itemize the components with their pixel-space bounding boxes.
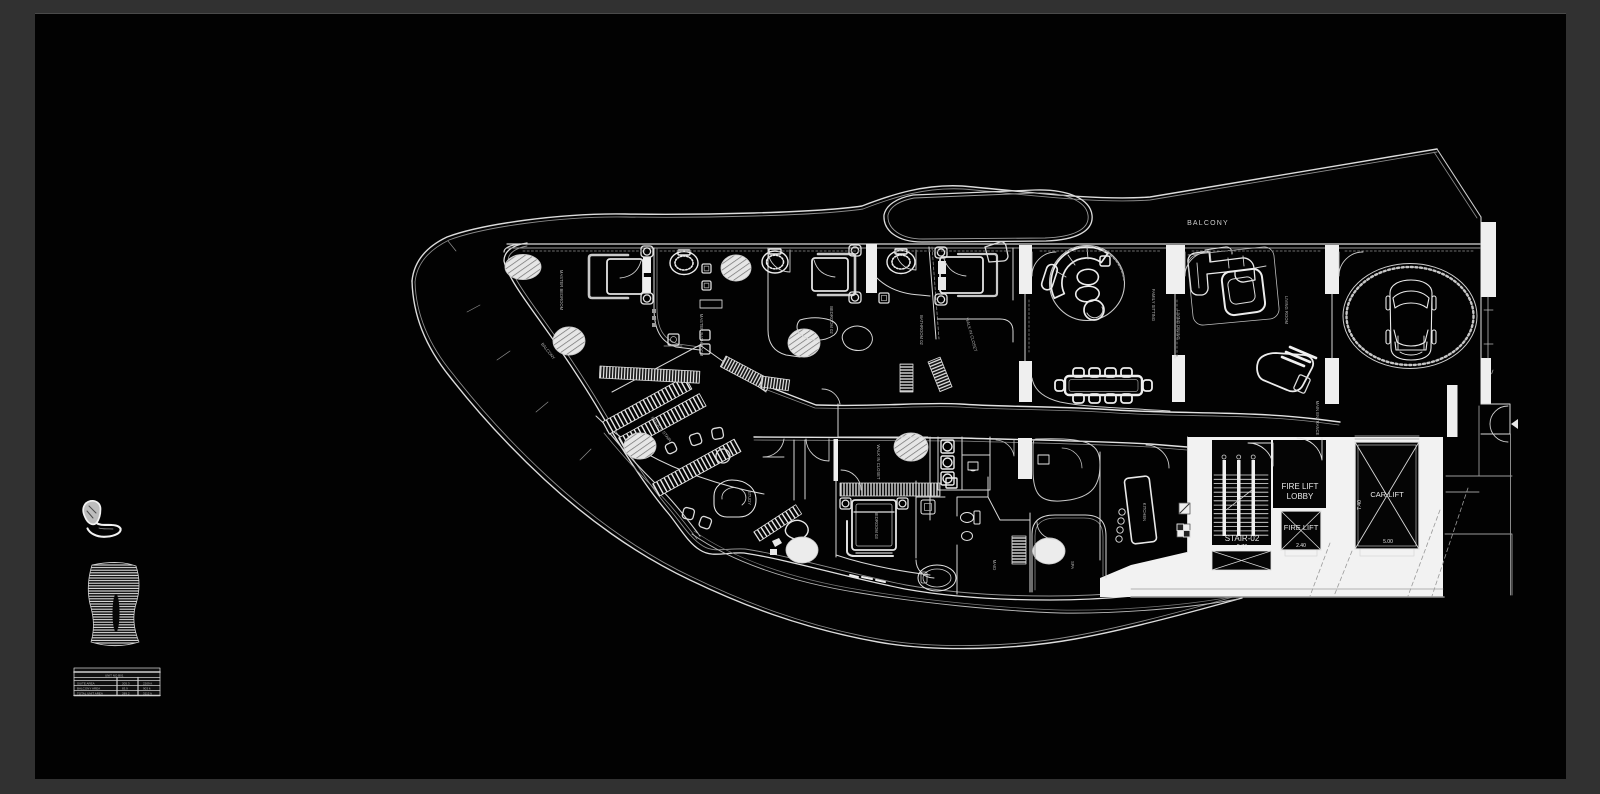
svg-text:FAMILY SITTING: FAMILY SITTING <box>1151 289 1156 321</box>
svg-text:KITCHEN: KITCHEN <box>1142 503 1147 521</box>
svg-text:WALK IN CLOSET: WALK IN CLOSET <box>876 445 881 480</box>
svg-text:LIVING DINING: LIVING DINING <box>1176 310 1181 340</box>
svg-text:LOBBY: LOBBY <box>1287 492 1314 501</box>
svg-text:2209 ft: 2209 ft <box>143 681 152 685</box>
svg-text:2.40: 2.40 <box>1296 543 1306 549</box>
svg-text:UNIT NO B01: UNIT NO B01 <box>105 673 124 677</box>
svg-text:903 ft: 903 ft <box>143 686 151 690</box>
svg-text:MASTER BEDROOM: MASTER BEDROOM <box>559 270 564 311</box>
svg-text:FIRE LIFT: FIRE LIFT <box>1282 482 1319 491</box>
svg-text:SUITE AREA: SUITE AREA <box>77 681 95 685</box>
svg-text:FIRE LIFT: FIRE LIFT <box>1284 523 1319 532</box>
svg-text:BEDROOM 02: BEDROOM 02 <box>829 306 834 334</box>
svg-text:STUDY: STUDY <box>747 491 752 505</box>
svg-text:TOTAL UNIT AREA: TOTAL UNIT AREA <box>77 691 103 695</box>
svg-text:MASTER BATHROOM: MASTER BATHROOM <box>699 314 704 357</box>
svg-text:205.3: 205.3 <box>122 681 130 685</box>
svg-text:MAID: MAID <box>992 560 997 570</box>
svg-text:CAR LIFT: CAR LIFT <box>1370 490 1404 499</box>
svg-text:LIVING ROOM: LIVING ROOM <box>1284 296 1289 324</box>
svg-text:MAIN ENTRANCE: MAIN ENTRANCE <box>1315 401 1320 436</box>
svg-text:STAIR-02: STAIR-02 <box>1225 534 1260 543</box>
svg-text:BALCONY: BALCONY <box>1187 220 1229 227</box>
svg-text:5.00: 5.00 <box>1383 539 1393 545</box>
svg-text:2.70: 2.70 <box>1237 544 1248 550</box>
svg-text:BEDROOM 03: BEDROOM 03 <box>874 511 879 539</box>
svg-text:3112 ft: 3112 ft <box>143 691 152 695</box>
svg-text:SPA: SPA <box>1070 561 1075 569</box>
svg-text:BALCONY AREA: BALCONY AREA <box>77 686 100 690</box>
svg-text:83.9: 83.9 <box>122 686 128 690</box>
svg-text:289.2: 289.2 <box>122 691 130 695</box>
svg-text:7.40: 7.40 <box>1357 500 1363 510</box>
svg-text:BATHROOM 02: BATHROOM 02 <box>919 315 924 345</box>
